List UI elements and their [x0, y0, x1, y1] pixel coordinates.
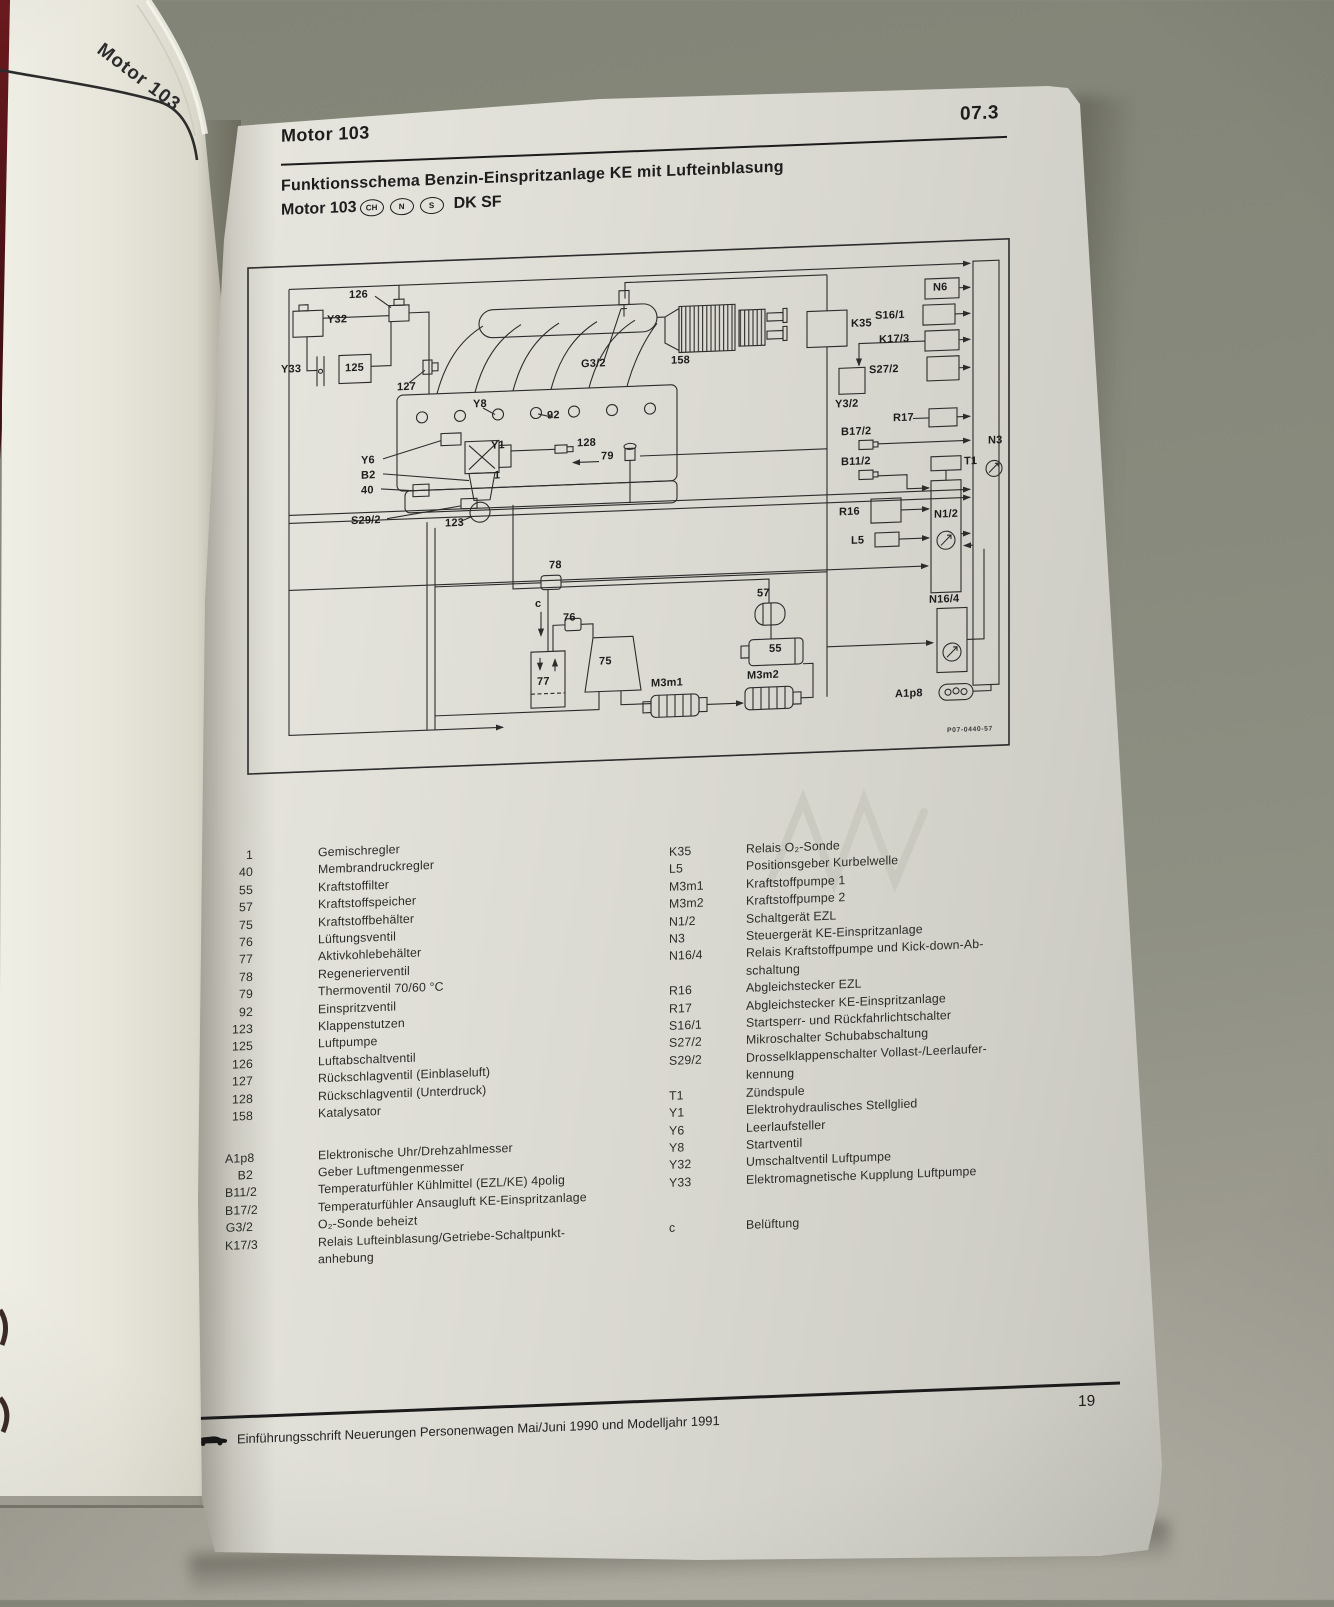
- country-badge-n: N: [390, 197, 414, 215]
- legend-code: 77: [225, 951, 253, 969]
- diagram-label-123: 123: [445, 517, 464, 530]
- legend-code: A1p8: [225, 1149, 253, 1167]
- legend-code: 57: [225, 899, 253, 917]
- diagram-label-r16: R16: [839, 506, 860, 519]
- legend-code: N16/4: [669, 946, 729, 983]
- page-content: Motor 103 07.3 Funktionsschema Benzin-Ei…: [180, 57, 1180, 1595]
- legend-code: 158: [225, 1108, 253, 1126]
- legend-code: B2: [225, 1167, 253, 1185]
- diagram-subtitle: Motor 103 CH N S DK SF: [281, 193, 502, 219]
- diagram-label-k35: K35: [851, 317, 872, 330]
- diagram-label-m3m1: M3m1: [651, 676, 683, 689]
- diagram-label-126: 126: [349, 288, 368, 301]
- legend-group: K35Relais O₂-SondeL5Positionsgeber Kurbe…: [669, 829, 1069, 1192]
- legend-code: Y33: [669, 1172, 729, 1192]
- legend-code: 127: [225, 1073, 253, 1091]
- legend-code: 123: [225, 1021, 253, 1039]
- diagram-label-b11-2: B11/2: [841, 455, 871, 468]
- footer-rule: [183, 1382, 1120, 1421]
- diagram-label-78: 78: [549, 559, 562, 571]
- header-rule: [281, 136, 1007, 166]
- legend-code: B11/2: [225, 1184, 253, 1202]
- diagram-label-b2: B2: [361, 469, 375, 482]
- page-section-code: 07.3: [960, 102, 999, 125]
- photo-of-manual-page: { "photo": { "spine_label": "Motor 103",…: [0, 0, 1334, 1600]
- legend-group: A1p8Elektronische Uhr/DrehzahlmesserB2Ge…: [225, 1135, 635, 1273]
- diagram-label-158: 158: [671, 354, 690, 367]
- legend-code: 40: [225, 864, 253, 882]
- legend-desc: Startventil: [746, 1135, 802, 1155]
- diagram-label-77: 77: [537, 675, 550, 687]
- legend-desc: Belüftung: [746, 1215, 799, 1234]
- diagram-label-55: 55: [769, 643, 782, 655]
- legend-code: 1: [225, 847, 253, 865]
- diagram-label-92: 92: [547, 409, 560, 421]
- diagram-label-75: 75: [599, 655, 612, 667]
- subtitle-dk-sf: DK SF: [454, 193, 502, 213]
- legend-code: 125: [225, 1038, 253, 1056]
- legend-code: 75: [225, 916, 253, 934]
- diagram-label-57: 57: [757, 587, 770, 599]
- diagram-label-n3: N3: [988, 434, 1002, 447]
- diagram-label-b17-2: B17/2: [841, 425, 871, 438]
- diagram-label-1: 1: [494, 469, 500, 481]
- country-badge-s: S: [420, 196, 444, 214]
- diagram-label-76: 76: [563, 611, 576, 623]
- diagram-label-g3-2: G3/2: [581, 357, 606, 370]
- diagram-label-m3m2: M3m2: [747, 669, 779, 682]
- subtitle-motor: Motor 103: [281, 199, 357, 220]
- diagram-label-y6: Y6: [361, 454, 375, 467]
- page-section-title: Motor 103: [281, 122, 370, 146]
- diagram-label-s27-2: S27/2: [869, 363, 899, 376]
- legend-desc: Katalysator: [318, 1103, 381, 1123]
- legend-desc: Klappenstutzen: [318, 1015, 405, 1036]
- diagram-label-a1p8: A1p8: [895, 687, 923, 700]
- legend-code: 79: [225, 986, 253, 1004]
- country-badge-ch: CH: [360, 198, 384, 216]
- diagram-label-y8: Y8: [473, 398, 487, 411]
- legend-code: 92: [225, 1004, 253, 1022]
- diagram-label-s16-1: S16/1: [875, 309, 905, 322]
- legend-code: 78: [225, 969, 253, 987]
- diagram-label-y32: Y32: [327, 313, 347, 326]
- legend-code: 55: [225, 882, 253, 900]
- diagram-label-k17-3: K17/3: [879, 333, 909, 346]
- legend-code: 126: [225, 1056, 253, 1074]
- diagram-label-y1: Y1: [491, 439, 505, 452]
- legend-column-left: 1Gemischregler40Membrandruckregler55Kraf…: [225, 832, 635, 1272]
- diagram-label-40: 40: [361, 484, 374, 496]
- diagram-label-r17: R17: [893, 411, 914, 424]
- diagram-label-y3-2: Y3/2: [835, 398, 858, 411]
- legend-row: cBelüftung: [669, 1205, 1069, 1238]
- diagram-label-n16-4: N16/4: [929, 593, 959, 606]
- diagram-label-s29-2: S29/2: [351, 514, 381, 527]
- footer: Einführungsschrift Neuerungen Personenwa…: [194, 1413, 720, 1448]
- legend-group: 1Gemischregler40Membrandruckregler55Kraf…: [225, 832, 635, 1126]
- legend-code: c: [669, 1218, 729, 1238]
- legend-column-right: K35Relais O₂-SondeL5Positionsgeber Kurbe…: [669, 829, 1069, 1238]
- functional-schematic: 126Y32Y33125127Y892Y1112879Y6B240S29/212…: [247, 238, 1010, 775]
- diagram-label-125: 125: [345, 362, 364, 375]
- legend-code: 76: [225, 934, 253, 952]
- legend-code: K17/3: [225, 1236, 253, 1272]
- legend-desc: Kraftstoffbehälter: [318, 910, 414, 931]
- diagram-label-79: 79: [601, 450, 614, 462]
- legend-code: S29/2: [669, 1050, 729, 1087]
- legend-group: cBelüftung: [669, 1205, 1069, 1238]
- diagram-title: Funktionsschema Benzin-Einspritzanlage K…: [281, 158, 784, 195]
- page-number: 19: [1078, 1393, 1095, 1412]
- diagram-label-l5: L5: [851, 534, 864, 547]
- legend-code: G3/2: [225, 1219, 253, 1237]
- diagram-label-t1: T1: [964, 455, 977, 468]
- legend-desc: Leerlaufsteller: [746, 1116, 826, 1136]
- diagram-label-y33: Y33: [281, 363, 301, 376]
- diagram-label-127: 127: [397, 381, 416, 394]
- diagram-label-n6: N6: [933, 281, 947, 294]
- legend-desc: Zündspule: [746, 1082, 805, 1102]
- diagram-label-c: c: [535, 598, 541, 610]
- legend-code: B17/2: [225, 1202, 253, 1220]
- legend-code: 128: [225, 1091, 253, 1109]
- footer-text: Einführungsschrift Neuerungen Personenwa…: [237, 1413, 720, 1447]
- diagram-label-128: 128: [577, 437, 596, 450]
- diagram-label-n1-2: N1/2: [934, 508, 958, 521]
